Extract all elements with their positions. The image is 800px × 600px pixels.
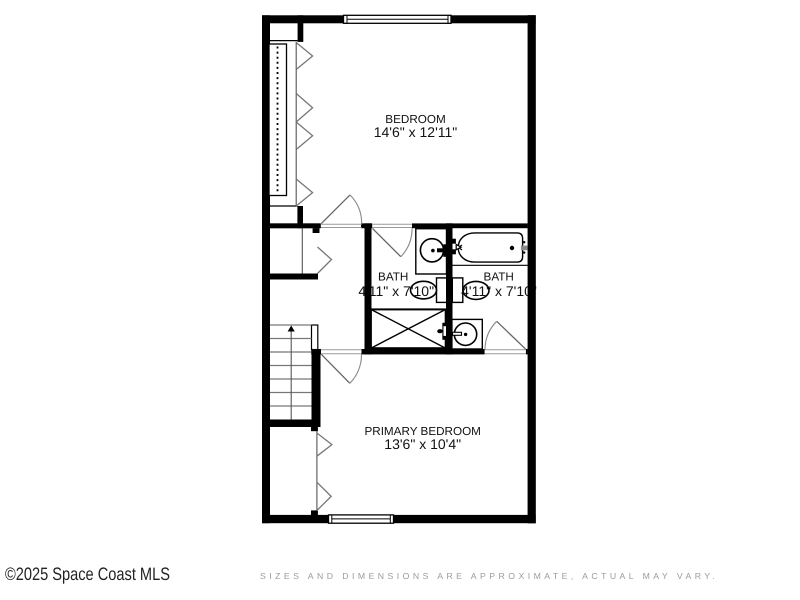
svg-text:13'6" x 10'4": 13'6" x 10'4" (384, 436, 461, 452)
svg-text:14'6" x 12'11": 14'6" x 12'11" (374, 124, 458, 140)
svg-text:BATH: BATH (484, 270, 514, 283)
svg-text:SIZES AND DIMENSIONS ARE APPRO: SIZES AND DIMENSIONS ARE APPROXIMATE, AC… (260, 571, 718, 581)
svg-text:4'11" x 7'10": 4'11" x 7'10" (461, 283, 537, 299)
svg-text:©2025 Space Coast MLS: ©2025 Space Coast MLS (5, 564, 170, 584)
svg-text:BATH: BATH (378, 270, 408, 283)
